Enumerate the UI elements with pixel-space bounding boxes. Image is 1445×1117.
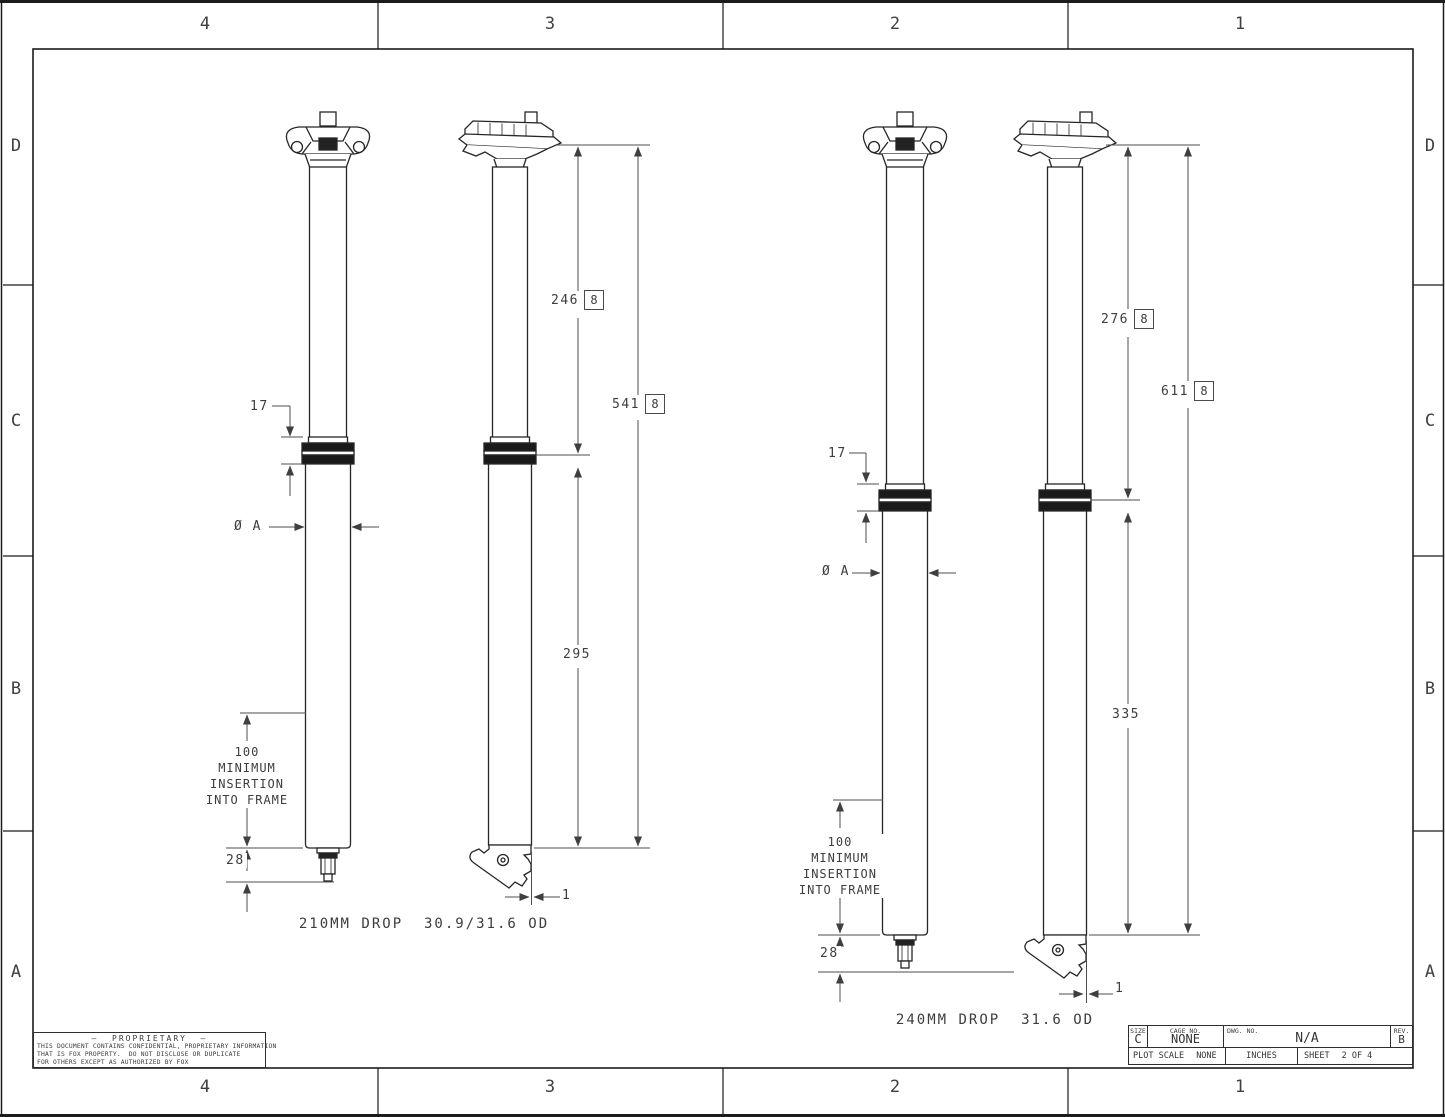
zone-col-label: 1 — [1229, 1077, 1251, 1097]
zone-row-label: A — [5, 962, 27, 982]
zone-row-label: D — [5, 136, 27, 156]
size-cell: SIZE C — [1129, 1026, 1148, 1047]
dim-lever-offset-210: 1 — [560, 888, 573, 903]
dim-extended-length-240: 276 — [1099, 312, 1131, 327]
plot-scale-cell: PLOT SCALE NONE — [1129, 1048, 1226, 1064]
flag-note-210-extended: 8 — [584, 290, 604, 310]
zone-col-label: 4 — [194, 14, 216, 34]
dim-lower-length-240: 335 — [1110, 707, 1142, 722]
sheet-label: SHEET — [1304, 1051, 1330, 1061]
proprietary-notice: — PROPRIETARY — THIS DOCUMENT CONTAINS C… — [33, 1032, 266, 1068]
zone-row-label: D — [1419, 136, 1441, 156]
units-value: INCHES — [1226, 1048, 1297, 1064]
title-block-row-1: SIZE C CAGE NO. NONE DWG. NO. N/A REV. B — [1129, 1026, 1412, 1048]
size-value: C — [1129, 1032, 1147, 1046]
dim-lever-offset-240: 1 — [1113, 981, 1126, 996]
zone-row-label: B — [1419, 679, 1441, 699]
plot-scale-value: NONE — [1196, 1051, 1216, 1061]
zone-row-label: C — [5, 411, 27, 431]
zone-col-label: 1 — [1229, 14, 1251, 34]
min-insertion-line: MINIMUM — [788, 850, 892, 866]
title-block-row-2: PLOT SCALE NONE INCHES SHEET 2 OF 4 — [1129, 1048, 1412, 1064]
proprietary-line: FOR OTHERS EXCEPT AS AUTHORIZED BY FOX — [37, 1059, 262, 1067]
post-210-side-view — [459, 112, 561, 888]
sheet-frame — [0, 0, 1445, 1117]
min-insertion-line: MINIMUM — [195, 760, 299, 776]
proprietary-line: THAT IS FOX PROPERTY. DO NOT DISCLOSE OR… — [37, 1051, 262, 1059]
zone-col-label: 3 — [539, 14, 561, 34]
min-insertion-note-210: 100 MINIMUM INSERTION INTO FRAME — [195, 744, 299, 808]
flag-note-210-overall: 8 — [645, 394, 665, 414]
rev-value: B — [1391, 1033, 1412, 1046]
dwg-no-value: N/A — [1224, 1031, 1390, 1046]
zone-col-label: 3 — [539, 1077, 561, 1097]
min-insertion-line: 100 — [788, 834, 892, 850]
dwg-no-cell: DWG. NO. N/A — [1224, 1026, 1391, 1047]
min-insertion-line: INTO FRAME — [195, 792, 299, 808]
title-block: SIZE C CAGE NO. NONE DWG. NO. N/A REV. B… — [1128, 1025, 1413, 1065]
zone-col-label: 2 — [884, 14, 906, 34]
zone-col-label: 4 — [194, 1077, 216, 1097]
dim-lower-length-210: 295 — [561, 647, 593, 662]
units-cell: INCHES — [1226, 1048, 1298, 1064]
flag-note-240-overall: 8 — [1194, 381, 1214, 401]
plot-scale-label: PLOT SCALE — [1133, 1051, 1184, 1061]
min-insertion-line: 100 — [195, 744, 299, 760]
zone-row-label: A — [1419, 962, 1441, 982]
dim-collar-height-210: 17 — [248, 399, 271, 414]
dim-extended-length-210: 246 — [549, 293, 581, 308]
sheet-value: 2 OF 4 — [1342, 1051, 1373, 1061]
dim-diameter-240: Ø A — [820, 564, 852, 579]
dim-actuator-depth-240: 28 — [818, 946, 841, 961]
cage-no-cell: CAGE NO. NONE — [1148, 1026, 1224, 1047]
view-caption-240: 240MM DROP 31.6 OD — [865, 1012, 1125, 1028]
min-insertion-note-240: 100 MINIMUM INSERTION INTO FRAME — [788, 834, 892, 898]
dim-overall-length-240: 611 — [1159, 384, 1191, 399]
dim-collar-height-240: 17 — [826, 446, 849, 461]
zone-row-label: C — [1419, 411, 1441, 431]
dim-diameter-210: Ø A — [232, 519, 264, 534]
rev-cell: REV. B — [1391, 1026, 1412, 1047]
view-caption-210: 210MM DROP 30.9/31.6 OD — [294, 916, 554, 932]
dim-overall-length-210: 541 — [610, 397, 642, 412]
min-insertion-line: INSERTION — [195, 776, 299, 792]
zone-row-label: B — [5, 679, 27, 699]
proprietary-line: THIS DOCUMENT CONTAINS CONFIDENTIAL, PRO… — [37, 1043, 262, 1051]
min-insertion-line: INTO FRAME — [788, 882, 892, 898]
min-insertion-line: INSERTION — [788, 866, 892, 882]
drawing-canvas — [0, 0, 1445, 1117]
flag-note-240-extended: 8 — [1134, 309, 1154, 329]
post-240-side-view — [1014, 112, 1116, 978]
proprietary-title: — PROPRIETARY — — [37, 1034, 262, 1043]
cage-no-value: NONE — [1148, 1032, 1223, 1046]
sheet-number-cell: SHEET 2 OF 4 — [1298, 1048, 1412, 1064]
drawing-sheet: 4 3 2 1 4 3 2 1 D C B A D C B A 17 Ø A 2… — [0, 0, 1445, 1117]
zone-col-label: 2 — [884, 1077, 906, 1097]
dim-actuator-depth-210: 28 — [224, 853, 247, 868]
